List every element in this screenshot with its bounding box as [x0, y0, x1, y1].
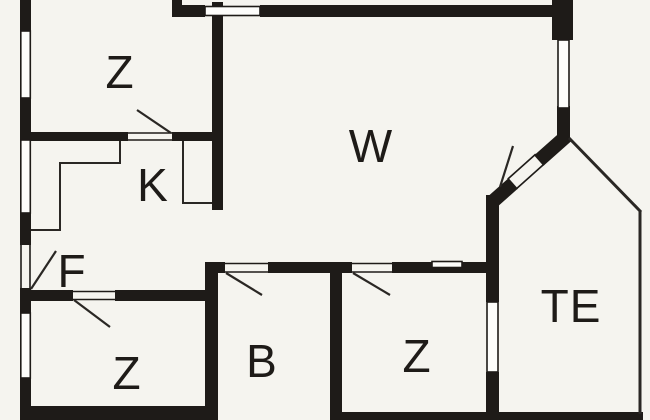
wall-segment: [115, 290, 216, 301]
room-label-z-top-left: Z: [105, 46, 134, 98]
room-label-z-bottom-left: Z: [112, 347, 141, 399]
window: [21, 313, 31, 378]
window: [558, 40, 569, 108]
wall-notch: [432, 262, 462, 268]
wall-segment: [172, 5, 205, 17]
wall-segment: [212, 2, 223, 210]
wall-segment: [330, 412, 643, 420]
window: [21, 31, 31, 98]
wall-segment: [20, 213, 31, 245]
floorplan-background: [0, 0, 650, 420]
wall-segment: [20, 288, 31, 313]
window: [21, 140, 31, 213]
window: [487, 302, 498, 372]
room-label-f-hall: F: [57, 245, 86, 297]
wall-segment: [260, 5, 570, 17]
floorplan: Z W K F Z B Z TE: [0, 0, 650, 420]
room-label-z-bottom-right: Z: [402, 330, 431, 382]
room-label-w-living: W: [349, 120, 393, 172]
wall-segment: [172, 132, 212, 141]
wall-segment: [31, 132, 128, 141]
wall-segment: [486, 195, 499, 302]
floorplan-drawing: Z W K F Z B Z TE: [0, 0, 650, 420]
wall-segment: [20, 0, 31, 31]
wall-segment: [330, 262, 342, 420]
wall-segment: [20, 98, 31, 140]
room-label-b-bath: B: [246, 335, 278, 387]
wall-diagonal-segment: [499, 188, 508, 196]
wall-segment: [20, 406, 216, 420]
window: [205, 7, 260, 16]
room-label-te-terrace: TE: [541, 280, 602, 332]
wall-segment: [205, 262, 218, 420]
room-label-k-kitchen: K: [137, 159, 169, 211]
wall-corner: [552, 0, 573, 40]
